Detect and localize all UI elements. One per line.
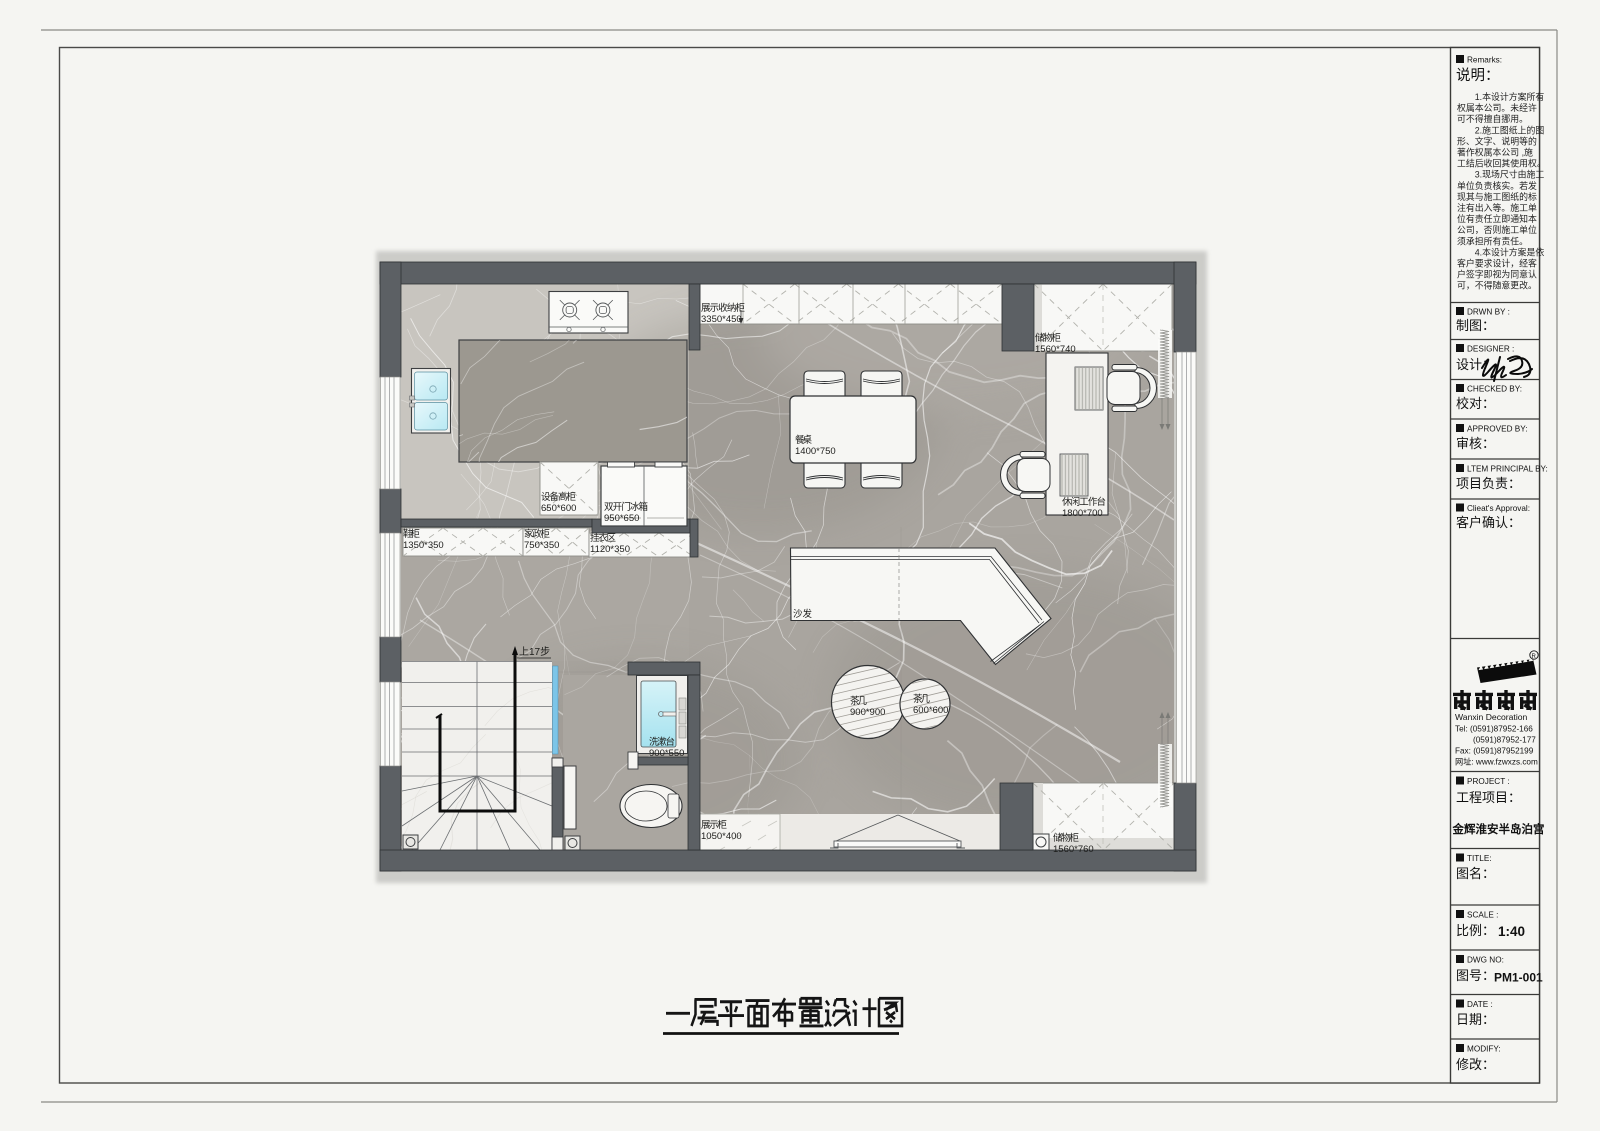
svg-text:储物柜: 储物柜 (1053, 832, 1079, 844)
svg-text:展示柜: 展示柜 (701, 819, 727, 831)
svg-text:设备高柜: 设备高柜 (541, 491, 576, 503)
svg-text:工程项目：: 工程项目： (1456, 790, 1521, 805)
svg-text:须承担所有责任。: 须承担所有责任。 (1457, 235, 1528, 246)
svg-text:修改：: 修改： (1456, 1057, 1495, 1072)
svg-text:网址: www.fzwxzs.com: 网址: www.fzwxzs.com (1455, 757, 1538, 767)
svg-text:DRWN BY :: DRWN BY : (1467, 308, 1510, 317)
svg-text:校对：: 校对： (1456, 396, 1495, 411)
svg-text:Wanxin Decoration: Wanxin Decoration (1455, 712, 1528, 722)
svg-text:鞋柜: 鞋柜 (403, 528, 420, 540)
svg-text:PROJECT :: PROJECT : (1467, 777, 1510, 786)
svg-text:储物柜: 储物柜 (1035, 332, 1061, 344)
svg-text:现其与施工图纸的标: 现其与施工图纸的标 (1457, 191, 1537, 202)
svg-text:R: R (1532, 654, 1537, 660)
svg-text:位有责任立即通知本: 位有责任立即通知本 (1457, 213, 1537, 224)
svg-text:说明：: 说明： (1456, 67, 1500, 84)
svg-text:2.施工图纸上的图: 2.施工图纸上的图 (1457, 124, 1544, 135)
svg-text:公司，否则施工单位: 公司，否则施工单位 (1457, 224, 1537, 235)
svg-text:650*600: 650*600 (541, 503, 576, 514)
svg-text:SCALE :: SCALE : (1467, 911, 1498, 920)
svg-text:DATE :: DATE : (1467, 1000, 1493, 1009)
svg-text:休闲工作台: 休闲工作台 (1062, 496, 1106, 508)
svg-text:权属本公司。未经许: 权属本公司。未经许 (1457, 102, 1537, 113)
svg-text:展示收纳柜: 展示收纳柜 (701, 302, 745, 314)
svg-text:比例：: 比例： (1456, 923, 1495, 938)
svg-text:餐桌: 餐桌 (795, 434, 812, 446)
svg-text:客户确认：: 客户确认： (1456, 515, 1521, 530)
svg-text:家政柜: 家政柜 (524, 528, 550, 540)
svg-text:洗漱台: 洗漱台 (649, 736, 675, 748)
svg-text:挂衣区: 挂衣区 (590, 532, 616, 544)
svg-text:金辉淮安半岛泊宫: 金辉淮安半岛泊宫 (1452, 822, 1545, 836)
svg-text:Tel: (0591)87952-166: Tel: (0591)87952-166 (1455, 725, 1533, 734)
svg-text:图号：: 图号： (1456, 968, 1495, 983)
svg-text:1050*400: 1050*400 (701, 831, 742, 842)
svg-text:TITLE:: TITLE: (1467, 854, 1492, 863)
svg-text:LTEM PRINCIPAL BY:: LTEM PRINCIPAL BY: (1467, 465, 1548, 474)
svg-text:可，不得随意更改。: 可，不得随意更改。 (1457, 280, 1537, 291)
svg-text:950*650: 950*650 (604, 513, 639, 524)
svg-text:DWG NO:: DWG NO: (1467, 956, 1504, 965)
svg-text:600*600: 600*600 (913, 705, 948, 716)
svg-text:900*550: 900*550 (649, 748, 684, 759)
svg-text:1400*750: 1400*750 (795, 446, 836, 457)
svg-text:著作权属本公司 ,施: 著作权属本公司 ,施 (1457, 147, 1533, 158)
svg-text:CHECKED BY:: CHECKED BY: (1467, 385, 1522, 394)
svg-text:1.本设计方案所有: 1.本设计方案所有 (1457, 91, 1544, 102)
svg-text:900*900: 900*900 (850, 707, 885, 718)
svg-text:Fax: (0591)87952199: Fax: (0591)87952199 (1455, 747, 1534, 756)
svg-text:Remarks:: Remarks: (1467, 56, 1502, 65)
svg-text:双开门冰箱: 双开门冰箱 (604, 501, 648, 513)
svg-text:APPROVED BY:: APPROVED BY: (1467, 425, 1528, 434)
svg-text:注有出入等。施工单: 注有出入等。施工单 (1457, 202, 1537, 213)
svg-text:DESIGNER :: DESIGNER : (1467, 345, 1514, 354)
svg-text:3350*450: 3350*450 (701, 314, 742, 325)
svg-text:工结后收回其使用权。: 工结后收回其使用权。 (1457, 158, 1546, 169)
svg-text:3.现场尺寸由施工: 3.现场尺寸由施工 (1457, 169, 1544, 180)
svg-text:户签字即视为同意认: 户签字即视为同意认 (1457, 269, 1537, 280)
svg-text:客户要求设计，经客: 客户要求设计，经客 (1457, 258, 1537, 269)
svg-text:上17步: 上17步 (519, 646, 550, 658)
svg-text:日期：: 日期： (1456, 1012, 1495, 1027)
svg-text:茶几: 茶几 (913, 693, 930, 705)
svg-text:项目负责：: 项目负责： (1456, 476, 1521, 491)
svg-text:单位负责核实。若发: 单位负责核实。若发 (1457, 180, 1537, 191)
svg-text:1800*700: 1800*700 (1062, 508, 1103, 519)
svg-text:形、文字、说明等的: 形、文字、说明等的 (1457, 135, 1537, 146)
svg-text:1120*350: 1120*350 (590, 544, 630, 555)
svg-text:图名：: 图名： (1456, 866, 1495, 881)
svg-text:(0591)87952-177: (0591)87952-177 (1473, 736, 1536, 745)
svg-text:4.本设计方案是依: 4.本设计方案是依 (1457, 246, 1544, 257)
svg-text:1560*760: 1560*760 (1053, 844, 1094, 855)
svg-text:制图：: 制图： (1456, 318, 1495, 333)
svg-text:1350*350: 1350*350 (403, 540, 444, 551)
svg-text:审核：: 审核： (1456, 436, 1495, 451)
svg-text:茶几: 茶几 (850, 695, 867, 707)
svg-text:750*350: 750*350 (524, 540, 559, 551)
svg-text:PM1-001: PM1-001 (1494, 971, 1543, 985)
svg-text:Clieat's Approval:: Clieat's Approval: (1467, 504, 1530, 513)
svg-text:MODIFY:: MODIFY: (1467, 1045, 1501, 1054)
svg-text:可不得擅自挪用。: 可不得擅自挪用。 (1457, 113, 1528, 124)
svg-text:1560*740: 1560*740 (1035, 344, 1076, 355)
svg-text:沙发: 沙发 (793, 608, 813, 620)
svg-text:1:40: 1:40 (1498, 924, 1525, 939)
